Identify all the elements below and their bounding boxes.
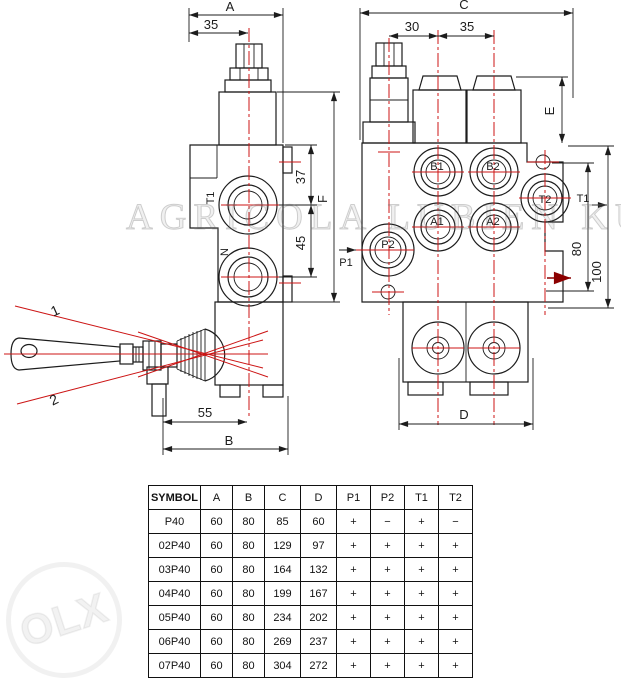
value-cell: + (439, 630, 473, 654)
table-row: 06P406080269237++++ (149, 630, 473, 654)
value-cell: 80 (233, 654, 265, 678)
value-cell: 80 (233, 606, 265, 630)
value-cell: + (405, 510, 439, 534)
table-row: 05P406080234202++++ (149, 606, 473, 630)
flow-p1-label: P1 (339, 257, 352, 269)
port-p2-label: P2 (381, 239, 394, 251)
dim-f-label: F (315, 195, 330, 203)
spool-caps (413, 76, 521, 143)
dim-e: E (516, 77, 568, 143)
value-cell: 199 (265, 582, 301, 606)
flow-t1-label: T1 (577, 193, 590, 205)
column-header: P1 (337, 486, 371, 510)
dim-35-left: 35 (189, 17, 248, 33)
dim-35-right: 35 (438, 19, 494, 36)
value-cell: + (337, 630, 371, 654)
dim-e-label: E (542, 106, 557, 115)
value-cell: − (371, 510, 405, 534)
value-cell: 80 (233, 630, 265, 654)
value-cell: 60 (201, 582, 233, 606)
symbol-cell: 06P40 (149, 630, 201, 654)
value-cell: + (405, 534, 439, 558)
value-cell: + (371, 534, 405, 558)
value-cell: 80 (233, 582, 265, 606)
dim-a-label: A (226, 0, 235, 14)
control-lever-assembly (11, 329, 225, 416)
symbol-cell: P40 (149, 510, 201, 534)
column-header: C (265, 486, 301, 510)
dim-30-label: 30 (405, 19, 419, 34)
value-cell: + (439, 558, 473, 582)
flow-t1: T1 (577, 193, 607, 205)
value-cell: 80 (233, 534, 265, 558)
dim-b: B (163, 396, 288, 455)
column-header: SYMBOL (149, 486, 201, 510)
dim-100: 100 (548, 146, 614, 308)
value-cell: + (405, 654, 439, 678)
port-a2-label: A2 (486, 216, 499, 228)
value-cell: + (405, 630, 439, 654)
dim-d-label: D (459, 407, 468, 422)
port-b1-label: B1 (430, 161, 443, 173)
value-cell: 60 (301, 510, 337, 534)
value-cell: 164 (265, 558, 301, 582)
symbol-cell: 07P40 (149, 654, 201, 678)
value-cell: 234 (265, 606, 301, 630)
value-cell: + (337, 558, 371, 582)
symbol-cell: 03P40 (149, 558, 201, 582)
dim-c-label: C (459, 0, 468, 12)
dim-30: 30 (389, 19, 438, 36)
value-cell: + (405, 558, 439, 582)
value-cell: 60 (201, 510, 233, 534)
value-cell: + (371, 630, 405, 654)
dim-35-right-label: 35 (460, 19, 474, 34)
table-row: P4060808560+−+− (149, 510, 473, 534)
technical-drawing: 1 2 T1 N A 35 37 45 (0, 0, 621, 480)
value-cell: + (371, 558, 405, 582)
value-cell: 60 (201, 534, 233, 558)
column-header: A (201, 486, 233, 510)
value-cell: + (337, 510, 371, 534)
value-cell: 60 (201, 654, 233, 678)
dim-37-label: 37 (293, 170, 308, 184)
column-header: D (301, 486, 337, 510)
table-row: 03P406080164132++++ (149, 558, 473, 582)
value-cell: + (337, 582, 371, 606)
value-cell: + (337, 654, 371, 678)
value-cell: 80 (233, 510, 265, 534)
dim-45-label: 45 (293, 236, 308, 250)
left-side-view: 1 2 T1 N A 35 37 45 (4, 0, 340, 455)
spec-table-body: P4060808560+−+−02P40608012997++++03P4060… (149, 510, 473, 678)
value-cell: 202 (301, 606, 337, 630)
dim-100-label: 100 (589, 261, 604, 283)
value-cell: + (337, 534, 371, 558)
value-cell: + (405, 606, 439, 630)
value-cell: 237 (301, 630, 337, 654)
column-header: P2 (371, 486, 405, 510)
dim-80: 80 (546, 163, 594, 291)
scanned-valve-datasheet: 1 2 T1 N A 35 37 45 (0, 0, 621, 679)
value-cell: + (371, 654, 405, 678)
valve-body-front (362, 143, 569, 302)
port-t1-side-label: T1 (205, 192, 217, 205)
spec-table-head-row: SYMBOLABCDP1P2T1T2 (149, 486, 473, 510)
port-t2-label: T2 (539, 194, 552, 206)
dim-b-label: B (225, 433, 234, 448)
lever-position-1-label: 1 (48, 301, 62, 319)
value-cell: + (439, 654, 473, 678)
column-header: T1 (405, 486, 439, 510)
port-b2-label: B2 (486, 161, 499, 173)
flow-p1: P1 (339, 250, 356, 269)
dim-37: 37 (279, 145, 317, 205)
symbol-cell: 02P40 (149, 534, 201, 558)
value-cell: 97 (301, 534, 337, 558)
table-row: 04P406080199167++++ (149, 582, 473, 606)
symbol-cell: 04P40 (149, 582, 201, 606)
port-n-side-label: N (219, 248, 231, 256)
table-row: 07P406080304272++++ (149, 654, 473, 678)
column-header: B (233, 486, 265, 510)
value-cell: + (371, 582, 405, 606)
port-a1-label: A1 (430, 216, 443, 228)
value-cell: + (337, 606, 371, 630)
dim-f: F (277, 92, 340, 302)
value-cell: 269 (265, 630, 301, 654)
value-cell: + (439, 534, 473, 558)
value-cell: 60 (201, 606, 233, 630)
symbol-cell: 05P40 (149, 606, 201, 630)
value-cell: 60 (201, 630, 233, 654)
value-cell: + (439, 582, 473, 606)
value-cell: 60 (201, 558, 233, 582)
column-header: T2 (439, 486, 473, 510)
value-cell: 85 (265, 510, 301, 534)
handle-hole (21, 345, 37, 358)
table-row: 02P40608012997++++ (149, 534, 473, 558)
dim-55-label: 55 (198, 405, 212, 420)
dim-45: 45 (279, 205, 317, 277)
dim-35-left-label: 35 (204, 17, 218, 32)
value-cell: 80 (233, 558, 265, 582)
value-cell: 132 (301, 558, 337, 582)
value-cell: 272 (301, 654, 337, 678)
value-cell: − (439, 510, 473, 534)
value-cell: 129 (265, 534, 301, 558)
dim-80-label: 80 (569, 242, 584, 256)
right-front-view: B1 B2 A1 A2 P2 T2 P1 T1 C 30 35 (339, 0, 614, 430)
spec-table: SYMBOLABCDP1P2T1T2 P4060808560+−+−02P406… (148, 485, 473, 678)
value-cell: 304 (265, 654, 301, 678)
olx-watermark: OLX (0, 547, 137, 679)
value-cell: + (439, 606, 473, 630)
dim-55: 55 (163, 398, 247, 428)
value-cell: + (371, 606, 405, 630)
relief-valve-adjuster (219, 44, 276, 145)
value-cell: + (405, 582, 439, 606)
value-cell: 167 (301, 582, 337, 606)
